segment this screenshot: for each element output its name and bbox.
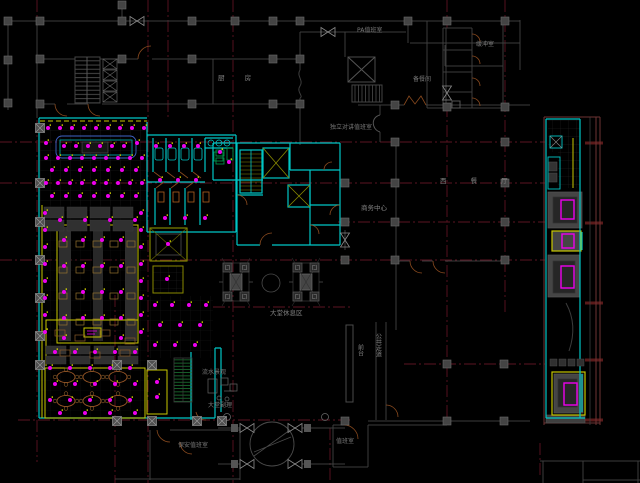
label-lobby-lounge: 大堂休息区	[270, 308, 303, 317]
strip-small-panels	[550, 359, 584, 366]
label-water-feature: 流水景观	[202, 368, 226, 376]
label-buffer-room: 缓冲室	[476, 40, 494, 48]
label-lobby-manager: 大堂副理	[208, 401, 232, 409]
label-pantry: 备餐间	[413, 75, 431, 83]
label-front-desk: 前台	[357, 343, 364, 357]
floor-plan-drawing[interactable]: PA值班室 缓冲室 厨 房 备餐间 独立对讲值班室 商务中心 西 餐 厅 大堂休…	[0, 0, 640, 483]
ceiling-grid-areas	[39, 120, 580, 418]
duct-shaft-boxes	[103, 59, 117, 102]
label-security-duty-room: 保安值班室	[178, 441, 208, 449]
label-business-center: 商务中心	[361, 203, 388, 212]
lobby-column-clusters	[219, 258, 323, 306]
label-duty-room: 值班室	[336, 437, 354, 445]
room-labels: PA值班室 缓冲室 厨 房 备餐间 独立对讲值班室 商务中心 西 餐 厅 大堂休…	[178, 26, 519, 449]
label-kitchen: 厨 房	[218, 73, 260, 82]
label-public-corridor: 公共走道	[375, 333, 382, 358]
revolving-door-entrance	[224, 414, 329, 469]
cad-viewport: PA值班室 缓冲室 厨 房 备餐间 独立对讲值班室 商务中心 西 餐 厅 大堂休…	[0, 0, 640, 483]
label-western-restaurant: 西 餐 厅	[440, 176, 519, 185]
label-intercom-duty-room: 独立对讲值班室	[330, 123, 372, 131]
label-pa-duty-room: PA值班室	[357, 26, 382, 34]
